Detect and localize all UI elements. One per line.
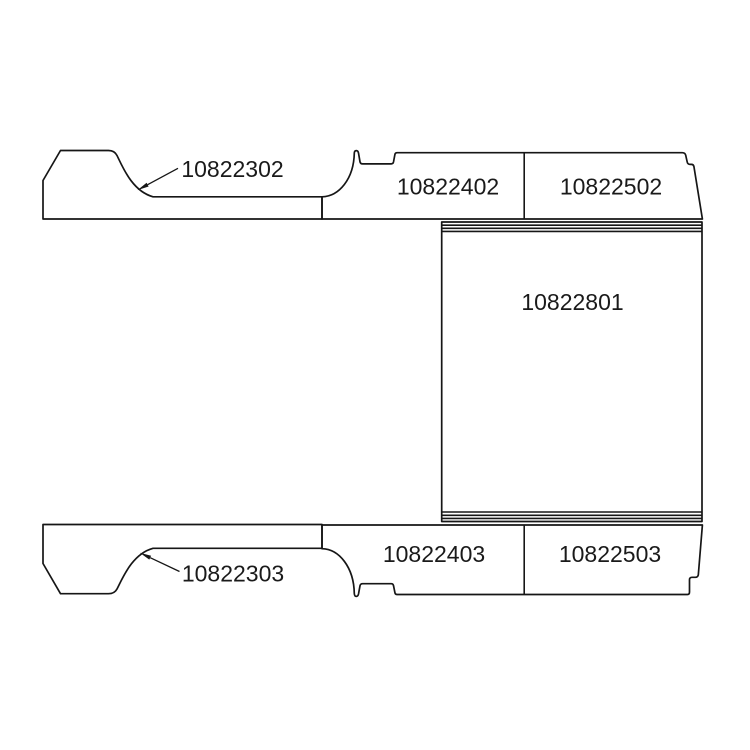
part-label-top-middle: 10822402 (397, 174, 499, 200)
part-label-bottom-right: 10822503 (559, 541, 661, 567)
part-label-bottom-middle: 10822403 (383, 541, 485, 567)
part-label-center: 10822801 (521, 289, 623, 315)
leader-line-bottom-left (150, 558, 179, 572)
diagram-canvas: 10822302 10822402 10822502 10822801 1082… (0, 0, 750, 750)
leader-arrowhead-top-left (138, 183, 149, 190)
leader-line-top-left (148, 168, 178, 184)
parts-diagram: 10822302 10822402 10822502 10822801 1082… (0, 0, 750, 750)
part-label-bottom-left: 10822303 (182, 561, 284, 587)
leader-arrowhead-bottom-left (140, 553, 151, 560)
panel-center-outline (442, 222, 702, 522)
part-label-top-left: 10822302 (181, 156, 283, 182)
part-label-top-right: 10822502 (560, 174, 662, 200)
